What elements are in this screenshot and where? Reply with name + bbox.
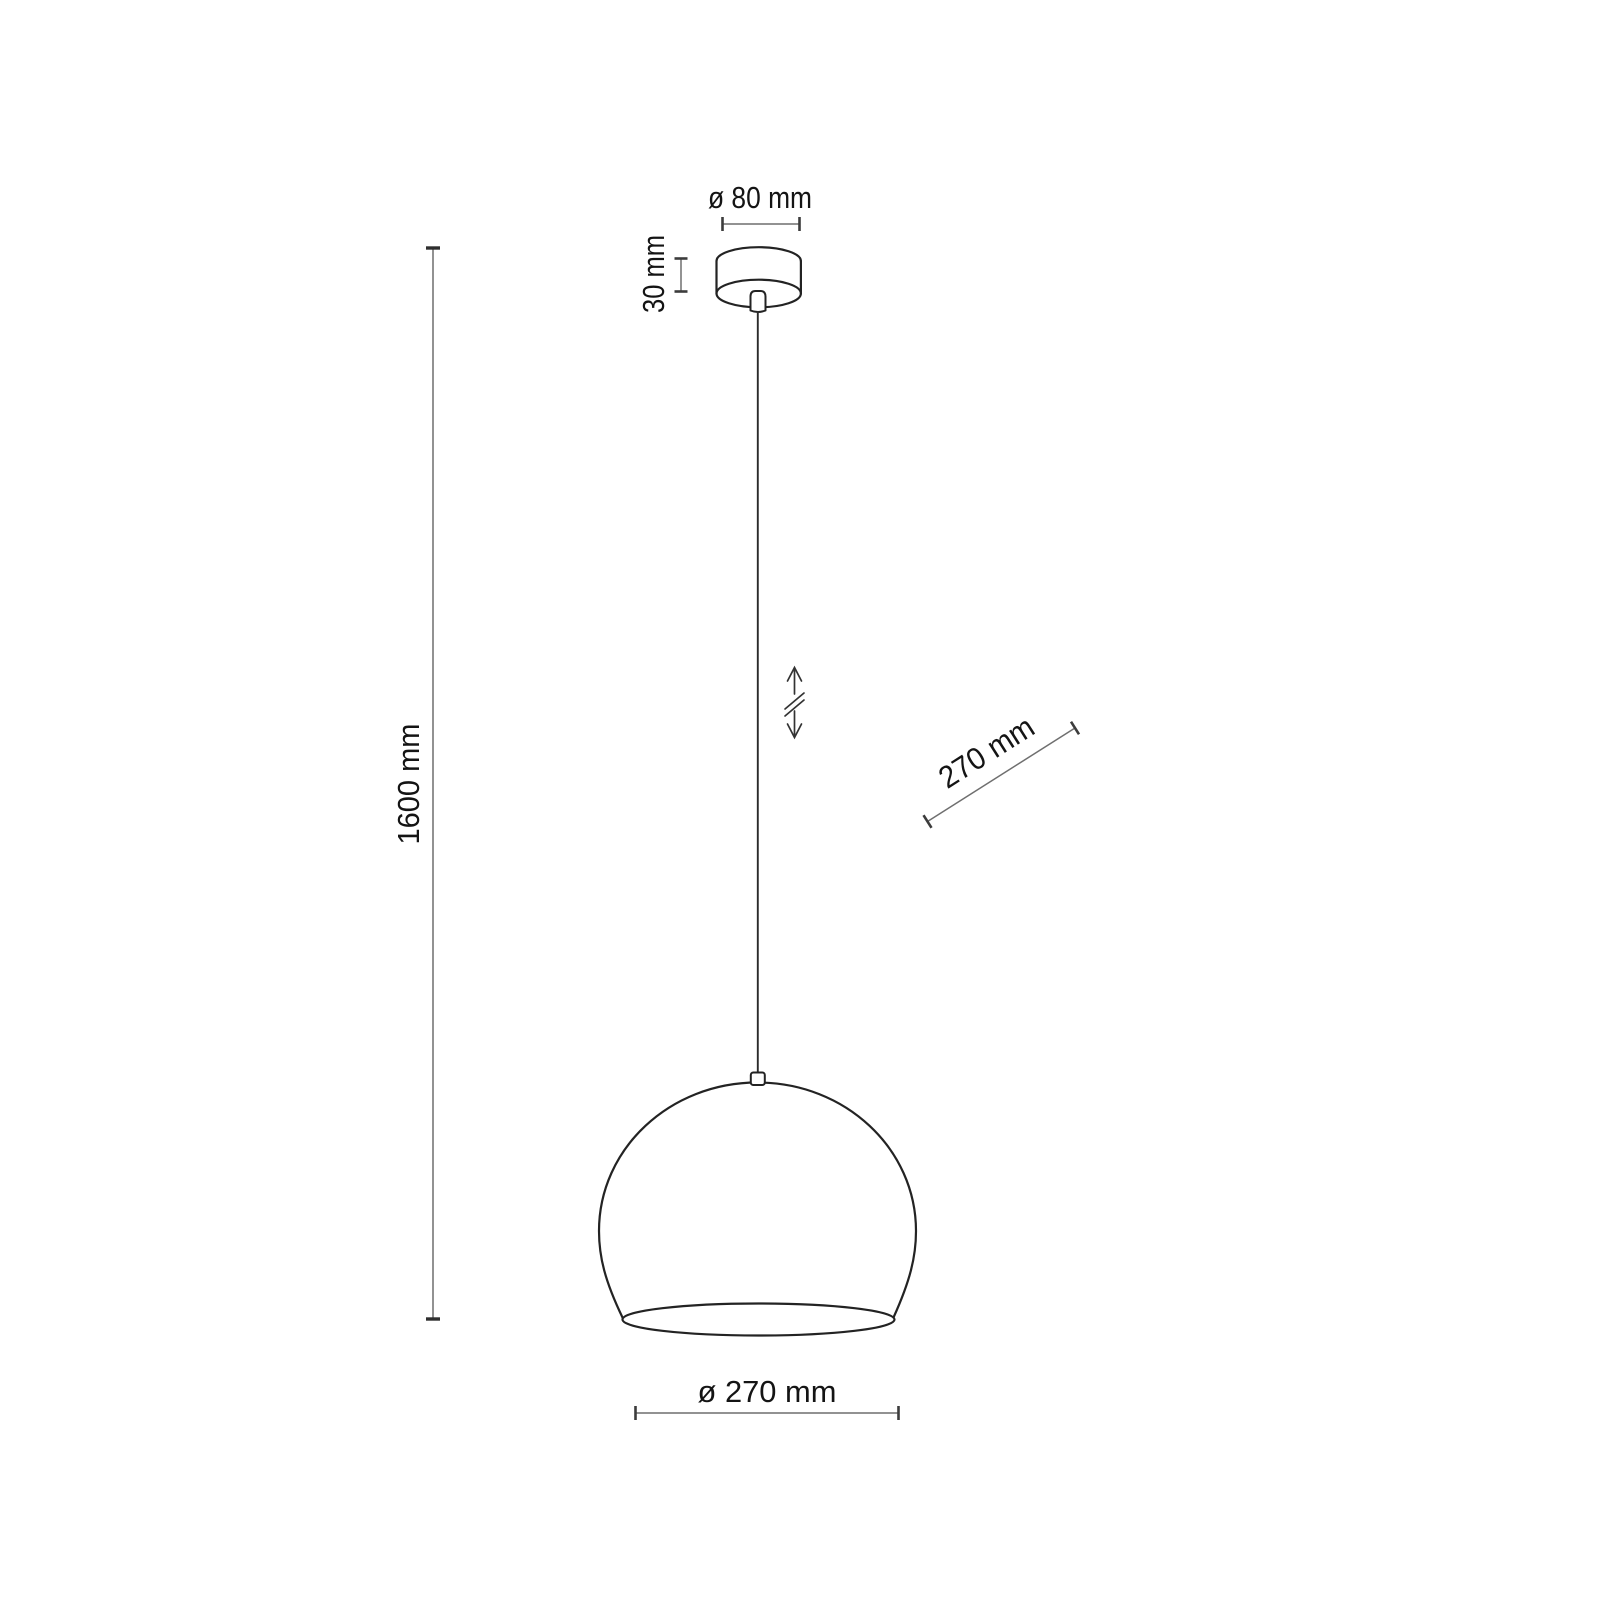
shade-rim-ellipse <box>623 1304 895 1336</box>
cord-grip <box>751 291 766 312</box>
shade-bottom-diameter-label: ø 270 mm <box>698 1374 837 1409</box>
dim-canopy-diameter: ø 80 mm <box>708 180 812 231</box>
dimension-drawing: ø 80 mm 30 mm 1600 mm 270 mm <box>0 0 1600 1600</box>
ceiling-canopy <box>717 247 801 312</box>
canopy-top-arc <box>717 247 801 261</box>
lamp-shade <box>599 1073 916 1336</box>
canopy-height-label: 30 mm <box>636 235 671 313</box>
dim-canopy-height: 30 mm <box>636 235 688 313</box>
shade-cable-connector <box>751 1073 765 1086</box>
shade-dome-outline <box>599 1083 916 1318</box>
canopy-diameter-label: ø 80 mm <box>708 180 812 215</box>
height-adjustable-icon <box>785 668 804 738</box>
dim-shade-side-diameter: 270 mm <box>924 709 1080 828</box>
pendant-lamp-diagram: ø 80 mm 30 mm 1600 mm 270 mm <box>0 0 1600 1600</box>
total-height-label: 1600 mm <box>391 724 426 845</box>
dim-shade-bottom-diameter: ø 270 mm <box>636 1374 899 1420</box>
dim-total-height: 1600 mm <box>391 248 440 1319</box>
shade-side-diameter-label: 270 mm <box>932 709 1040 795</box>
